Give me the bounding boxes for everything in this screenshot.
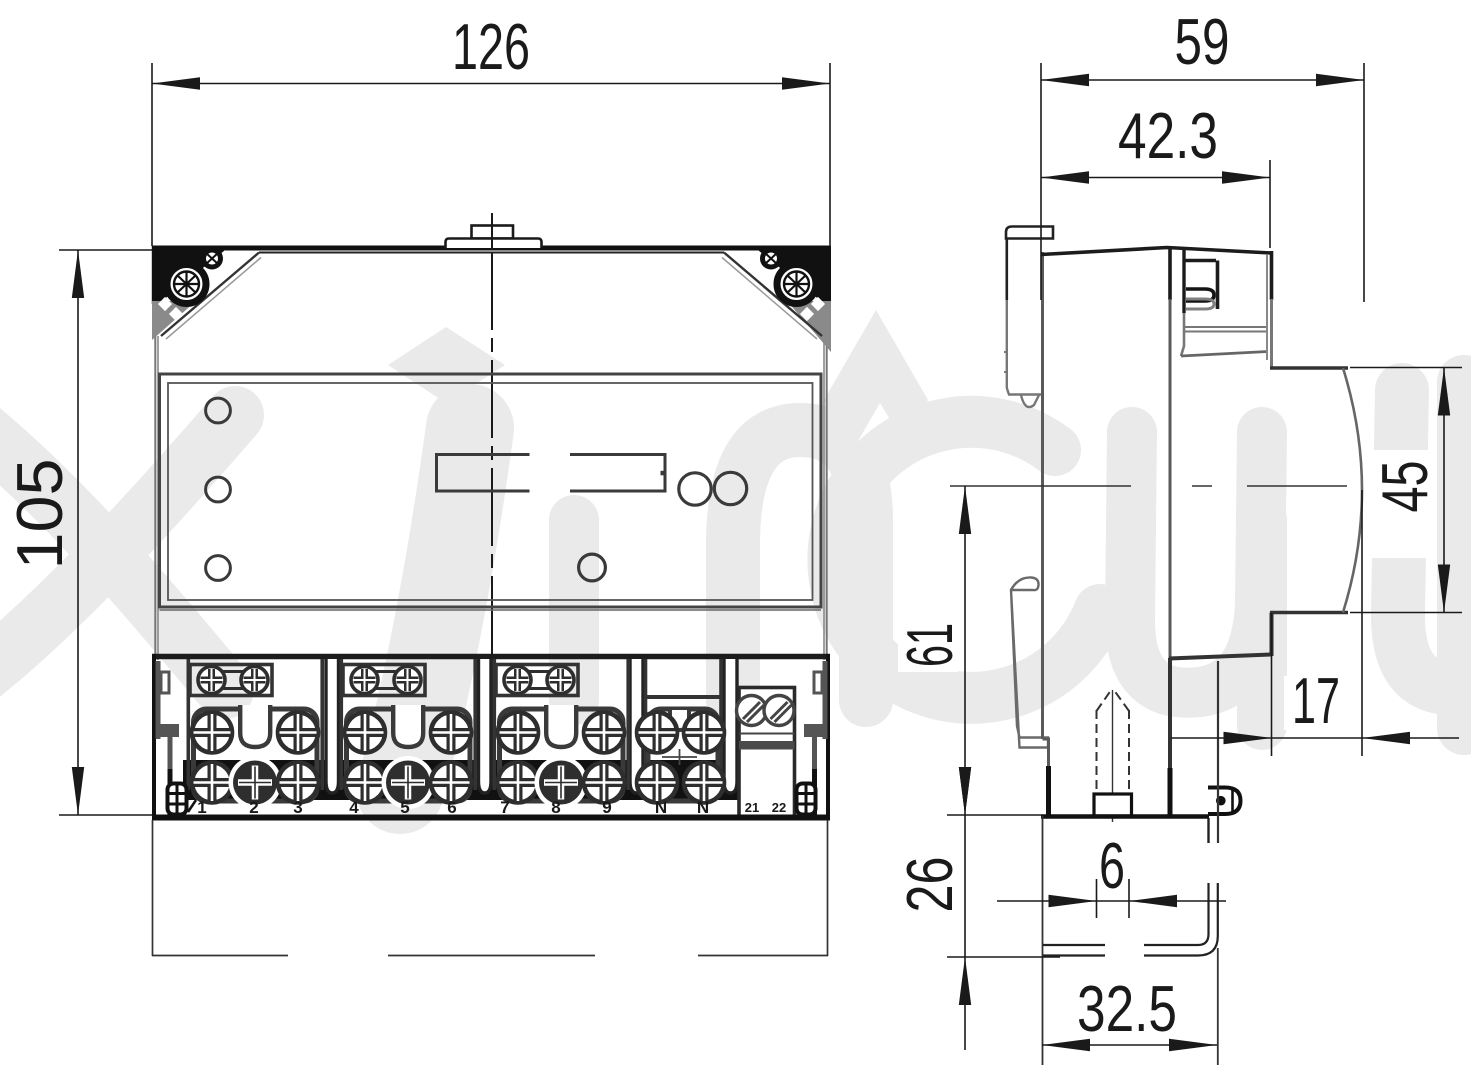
svg-text:26: 26	[893, 857, 966, 913]
svg-text:9: 9	[602, 798, 611, 817]
svg-text:32.5: 32.5	[1077, 972, 1177, 1045]
svg-text:7: 7	[500, 798, 509, 817]
svg-text:N: N	[697, 798, 709, 817]
svg-text:17: 17	[1292, 664, 1340, 737]
svg-text:42.3: 42.3	[1118, 99, 1218, 172]
svg-text:61: 61	[893, 623, 966, 667]
svg-text:45: 45	[1368, 461, 1441, 513]
svg-text:59: 59	[1175, 5, 1230, 78]
svg-text:6: 6	[447, 798, 456, 817]
svg-text:2: 2	[249, 798, 258, 817]
svg-text:126: 126	[452, 10, 530, 83]
svg-text:6: 6	[1099, 829, 1125, 902]
svg-text:N: N	[655, 798, 667, 817]
svg-text:21: 21	[745, 800, 759, 815]
svg-text:1: 1	[197, 798, 206, 817]
svg-text:22: 22	[772, 800, 786, 815]
svg-text:3: 3	[293, 798, 302, 817]
svg-text:4: 4	[349, 798, 359, 817]
svg-text:105: 105	[3, 459, 76, 570]
svg-text:5: 5	[400, 798, 409, 817]
svg-text:8: 8	[551, 798, 560, 817]
